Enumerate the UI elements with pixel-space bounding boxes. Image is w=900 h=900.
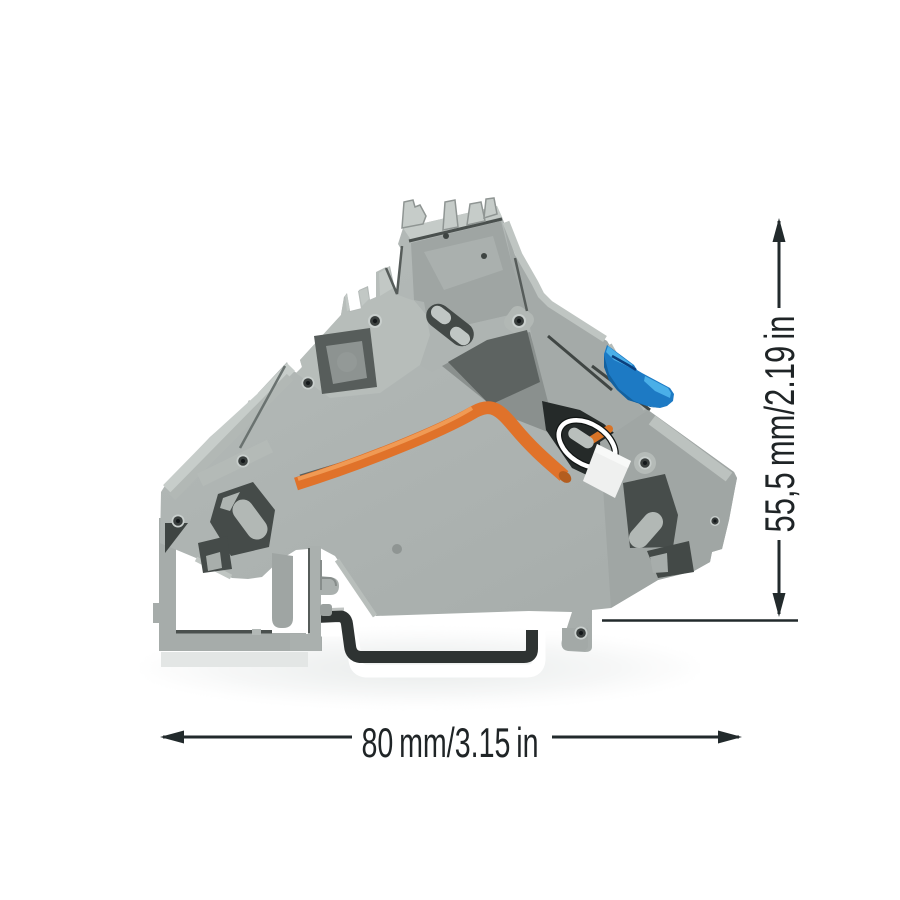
svg-text:55,5 mm/2.19 in: 55,5 mm/2.19 in — [756, 316, 803, 533]
svg-text:80 mm/3.15 in: 80 mm/3.15 in — [362, 719, 539, 766]
